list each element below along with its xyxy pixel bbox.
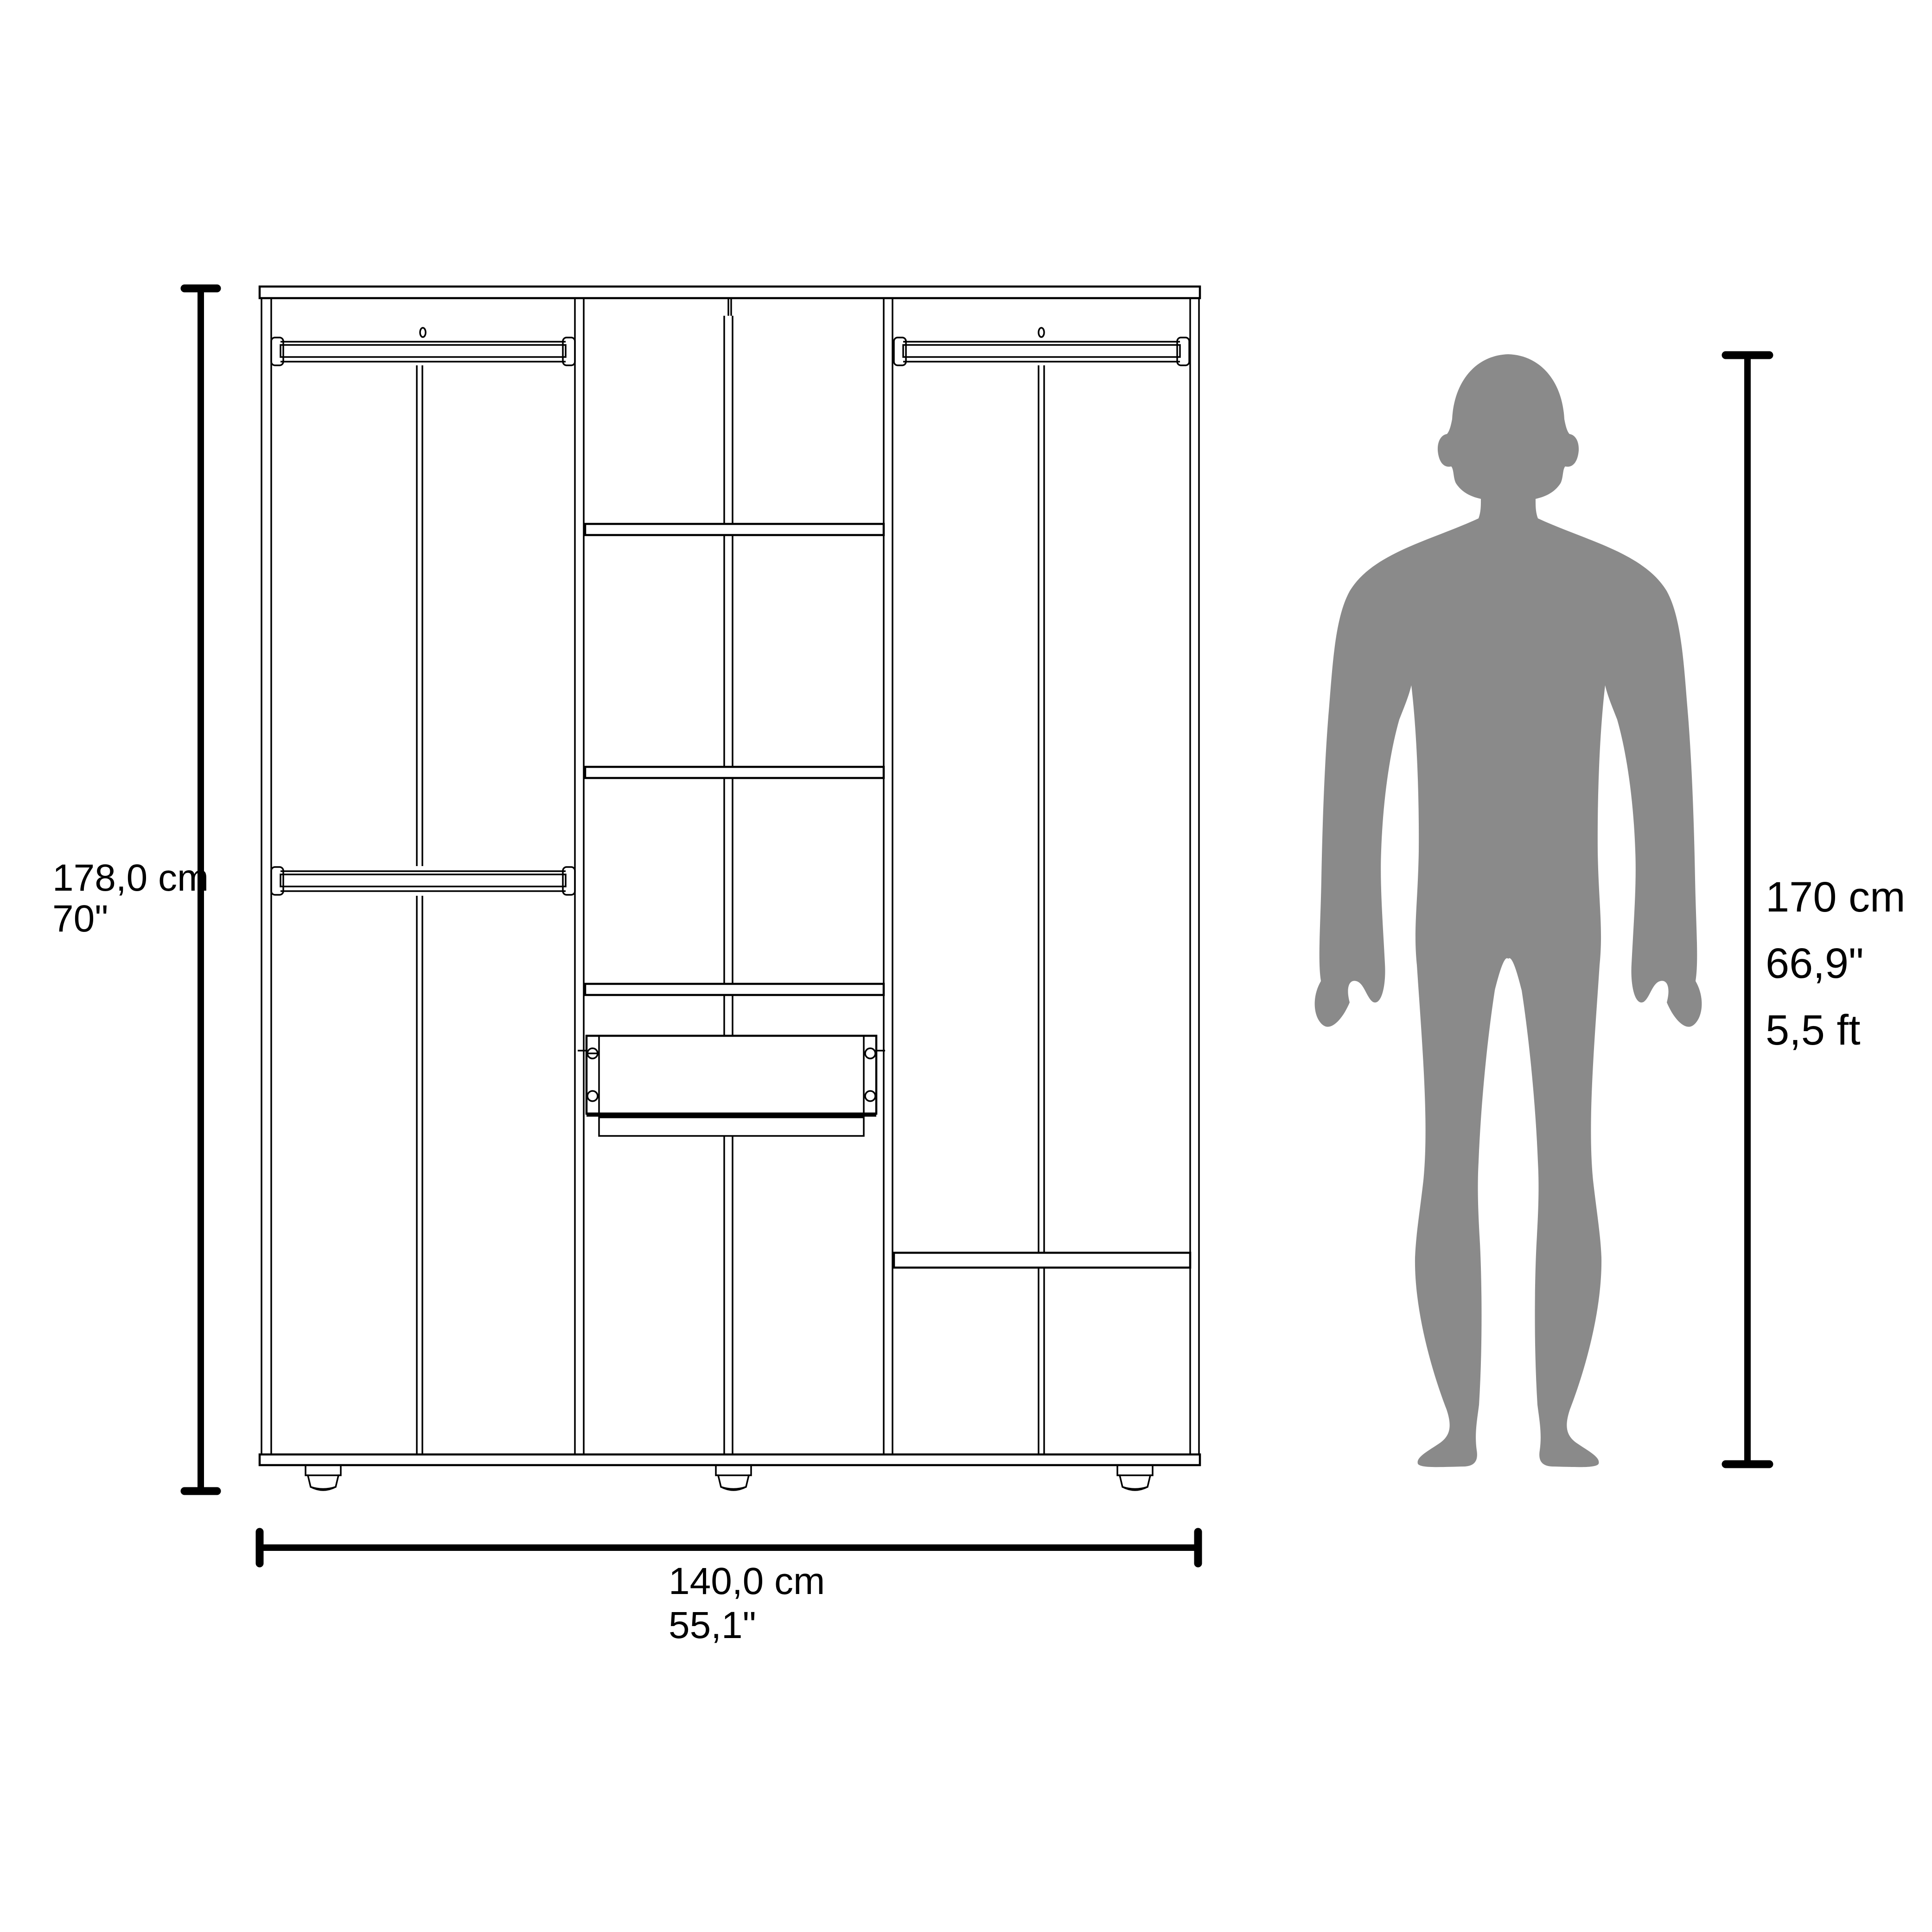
shelf-3	[585, 984, 884, 995]
shelf-1	[585, 524, 884, 535]
shelf-2	[585, 767, 884, 778]
person-height-in-label: 66,9"	[1766, 940, 1864, 987]
wardrobe-bottom-panel	[260, 1454, 1200, 1465]
product-width-in-label: 55,1"	[669, 1604, 756, 1646]
wardrobe-size-diagram: 178,0 cm 70" 140,0 cm 55,1" 170 cm 66,9"…	[0, 0, 1932, 1932]
product-width-cm-label: 140,0 cm	[669, 1560, 825, 1602]
person-height-ft-label: 5,5 ft	[1766, 1007, 1861, 1054]
diagram-page: 178,0 cm 70" 140,0 cm 55,1" 170 cm 66,9"…	[0, 0, 1932, 1932]
person-height-cm-label: 170 cm	[1766, 874, 1906, 921]
right-lower-shelf	[894, 1253, 1190, 1268]
product-height-in-label: 70"	[52, 898, 108, 940]
product-height-cm-label: 178,0 cm	[52, 857, 209, 899]
wardrobe-top-panel	[260, 287, 1200, 298]
